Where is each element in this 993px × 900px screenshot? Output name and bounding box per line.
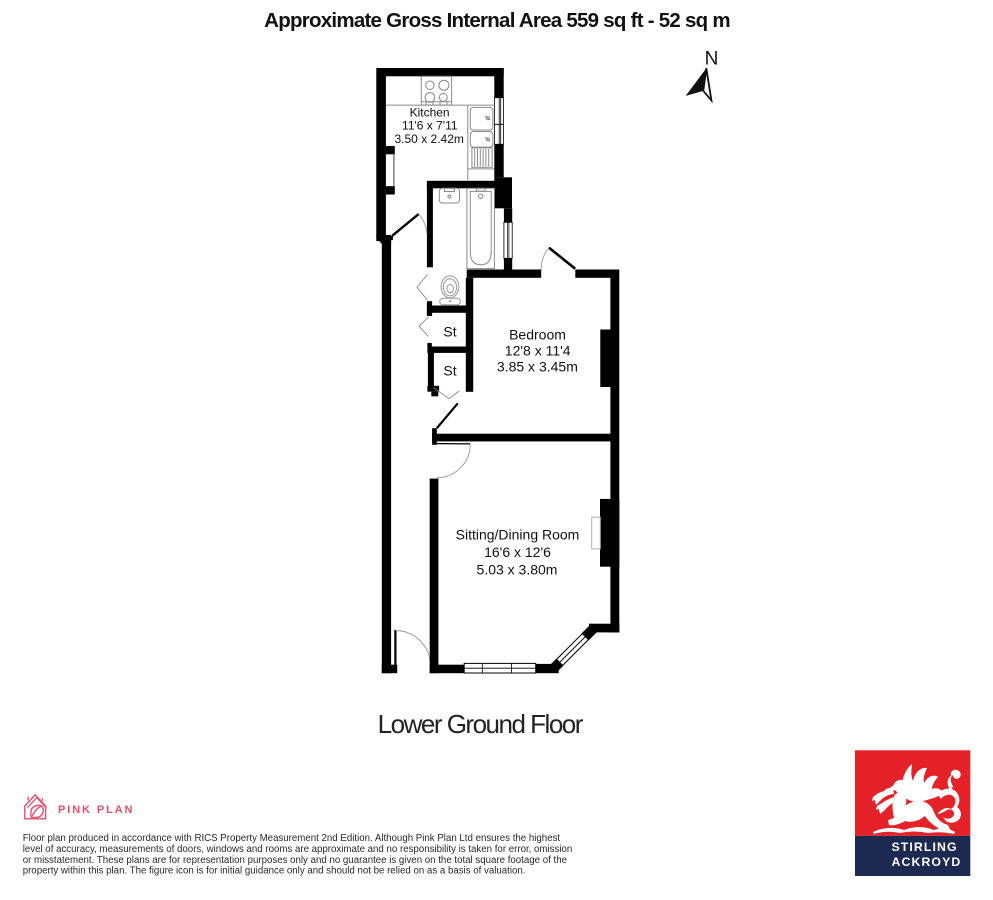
svg-text:12'8 x 11'4: 12'8 x 11'4: [505, 342, 571, 358]
svg-text:5.03 x 3.80m: 5.03 x 3.80m: [477, 562, 558, 578]
svg-text:PINK PLAN: PINK PLAN: [58, 804, 134, 816]
svg-text:STIRLING: STIRLING: [892, 840, 958, 854]
svg-text:level of accuracy, measurement: level of accuracy, measurements of doors…: [23, 844, 573, 855]
svg-text:N: N: [705, 49, 719, 70]
svg-text:property within this plan. The: property within this plan. The figure ic…: [23, 866, 526, 877]
svg-text:Bedroom: Bedroom: [509, 326, 566, 342]
svg-text:St: St: [443, 362, 456, 378]
svg-text:ACKROYD: ACKROYD: [892, 855, 962, 869]
svg-text:16'6 x 12'6: 16'6 x 12'6: [484, 544, 551, 560]
svg-text:Sitting/Dining Room: Sitting/Dining Room: [456, 527, 580, 543]
svg-text:St: St: [443, 323, 456, 339]
svg-text:3.50 x 2.42m: 3.50 x 2.42m: [395, 132, 464, 146]
svg-text:Approximate Gross Internal Are: Approximate Gross Internal Area 559 sq f…: [264, 9, 730, 32]
svg-text:Lower Ground Floor: Lower Ground Floor: [378, 709, 584, 739]
svg-text:11'6 x 7'11: 11'6 x 7'11: [402, 119, 458, 133]
svg-text:or misstatement. These plans a: or misstatement. These plans are for rep…: [23, 855, 567, 866]
svg-text:Kitchen: Kitchen: [410, 106, 450, 120]
svg-text:Floor plan produced in accorda: Floor plan produced in accordance with R…: [23, 833, 561, 844]
svg-text:3.85 x 3.45m: 3.85 x 3.45m: [497, 358, 578, 374]
